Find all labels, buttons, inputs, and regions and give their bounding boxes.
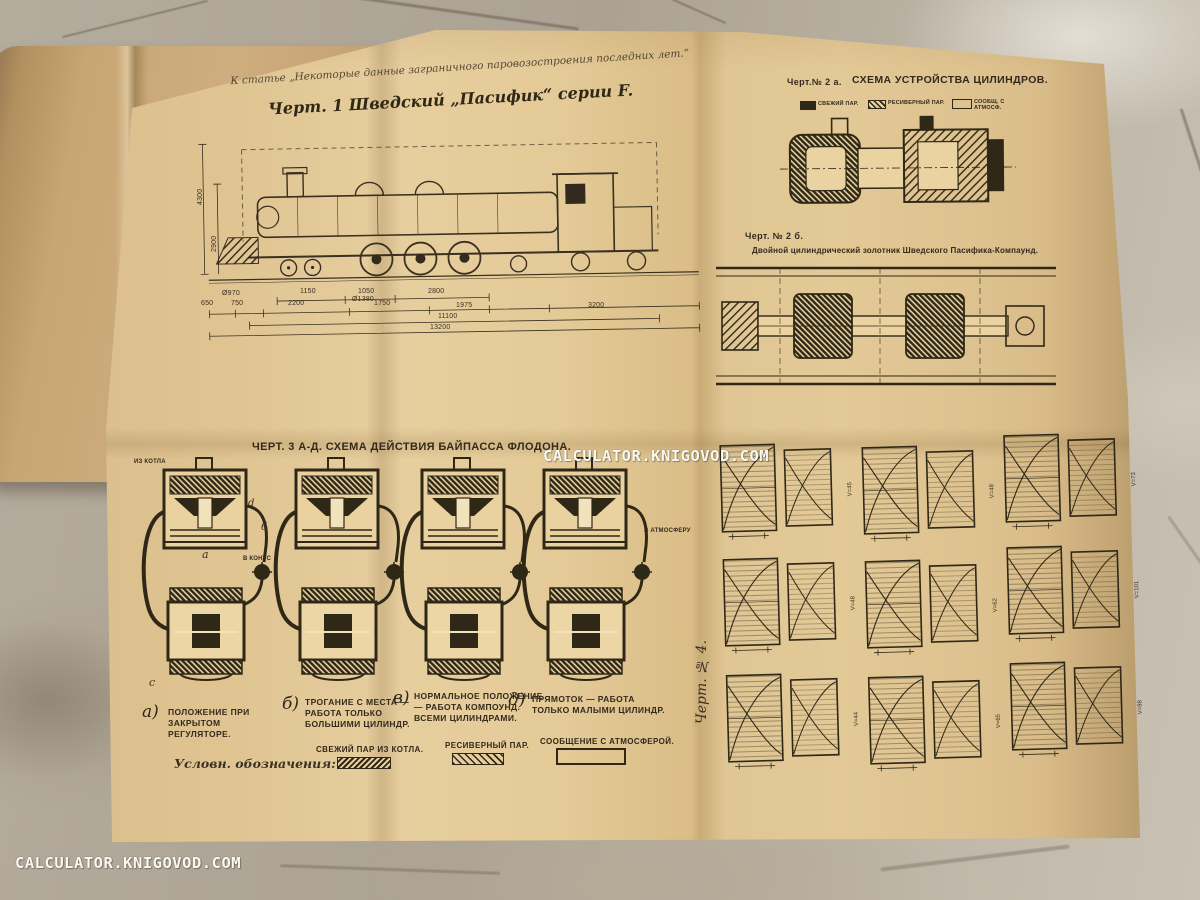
indicator-card-annotation: V=48 <box>850 596 856 610</box>
caption-text-v: Нормальное положение — работа Компоунд. … <box>414 691 546 724</box>
dim-label: 2200 <box>288 300 304 307</box>
legend-label-receiver: Ресиверный пар. <box>445 741 529 750</box>
legend-swatch-atmosphere <box>556 748 626 765</box>
indicator-card <box>863 555 986 658</box>
indicator-card-annotation: V=65 <box>996 714 1002 728</box>
fig2a-legend-label: свежий пар. <box>818 101 859 107</box>
caption-letter-b: б) <box>282 694 299 714</box>
dim-label: Ø1380 <box>352 296 374 303</box>
indicator-card-annotation: V=48 <box>989 484 995 498</box>
indicator-card <box>1002 429 1125 532</box>
fig2a-label: Черт.№ 2 а. <box>787 77 842 87</box>
dim-label: 4300 <box>197 189 204 205</box>
indicator-card <box>860 441 983 544</box>
caption-text-d: Прямоток — работа только малыми цилиндр. <box>532 694 670 716</box>
annotation-to-cone: в конус <box>243 556 271 562</box>
dim-label: 1975 <box>456 302 472 309</box>
fig2b-caption: Двойной цилиндрический золотник Шведског… <box>752 246 1038 255</box>
marble-vein <box>1167 516 1200 608</box>
dim-label: 2900 <box>211 236 218 252</box>
fig2a-title: Схема устройства цилиндров. <box>852 74 1048 86</box>
dim-label: 13200 <box>430 324 450 331</box>
marble-vein <box>880 844 1069 871</box>
marble-vein <box>643 0 726 24</box>
bypass-diagram-v <box>398 456 533 691</box>
dim-label: 2800 <box>428 288 444 295</box>
marble-vein <box>1180 108 1200 195</box>
indicator-diagram-grid: V=45 V=48 V=73 V=48 V=62 V=101 V=44 V=65… <box>716 428 1156 790</box>
bypass-diagram-a <box>140 456 275 691</box>
legend-label-fresh: Свежий пар из котла. <box>316 745 423 754</box>
dim-label: 3200 <box>588 302 604 309</box>
annotation-letter-b: б <box>261 522 267 533</box>
indicator-card <box>867 671 990 774</box>
dim-label: Ø970 <box>222 290 240 297</box>
indicator-card <box>1008 657 1131 760</box>
annotation-from-boiler: из котла <box>134 459 166 465</box>
fig2b-label: Черт. № 2 б. <box>745 231 803 241</box>
annotation-letter-c: с <box>149 676 155 689</box>
watermark-center: CALCULATOR.KNIGOVOD.COM <box>543 447 769 465</box>
indicator-card-annotation: V=45 <box>847 482 853 496</box>
indicator-card-annotation: V=44 <box>854 712 860 726</box>
watermark-bottom-left: CALCULATOR.KNIGOVOD.COM <box>15 854 241 872</box>
caption-letter-a: а) <box>142 702 159 722</box>
annotation-to-atmosphere: в атмосферу <box>644 528 691 534</box>
caption-letter-d: д) <box>508 690 525 710</box>
marble-vein <box>301 0 579 30</box>
fig3-title: Черт. 3 а-д. Схема действия байпасса Фло… <box>252 441 571 453</box>
indicator-card <box>1005 541 1128 644</box>
indicator-card-annotation: V=73 <box>1131 472 1137 486</box>
legend-swatch-fresh <box>337 757 391 769</box>
dim-label: 11100 <box>438 313 457 320</box>
bypass-diagram-d <box>520 456 655 691</box>
indicator-card-annotation: V=62 <box>993 598 999 612</box>
photo-of-foldout-drawing: К статье „Некоторые данные заграничного … <box>0 0 1200 900</box>
dim-label: 650 <box>201 300 213 307</box>
indicator-card-annotation: V=101 <box>1134 581 1140 599</box>
annotation-letter-a: а <box>202 548 209 561</box>
dim-label: 1750 <box>374 300 390 307</box>
caption-text-a: Положение при закрытом регуляторе. <box>168 707 280 740</box>
indicator-card <box>724 669 847 772</box>
indicator-card <box>721 553 844 656</box>
marble-vein <box>62 0 208 38</box>
marble-vein <box>280 864 500 875</box>
legend-label-atmosphere: Сообщение с атмосферой. <box>540 737 674 746</box>
legend-swatch-receiver <box>452 753 504 765</box>
caption-letter-v: в) <box>393 688 410 708</box>
annotation-letter-e: е <box>229 594 235 605</box>
legend-title: Условн. обозначения: <box>174 756 336 771</box>
bypass-diagram-b <box>272 456 407 691</box>
slide-valve-drawing <box>710 262 1062 390</box>
cylinder-scheme-drawing <box>779 107 1018 227</box>
dim-label: 1050 <box>358 288 374 295</box>
fig2a-legend-label: ресиверный пар. <box>888 100 945 106</box>
fig4-label: Черт. № 4. <box>694 640 710 724</box>
dim-label: 750 <box>231 300 243 307</box>
dim-label: 1150 <box>300 288 316 295</box>
indicator-card-annotation: V=98 <box>1137 700 1143 714</box>
annotation-letter-d: d <box>248 498 254 509</box>
